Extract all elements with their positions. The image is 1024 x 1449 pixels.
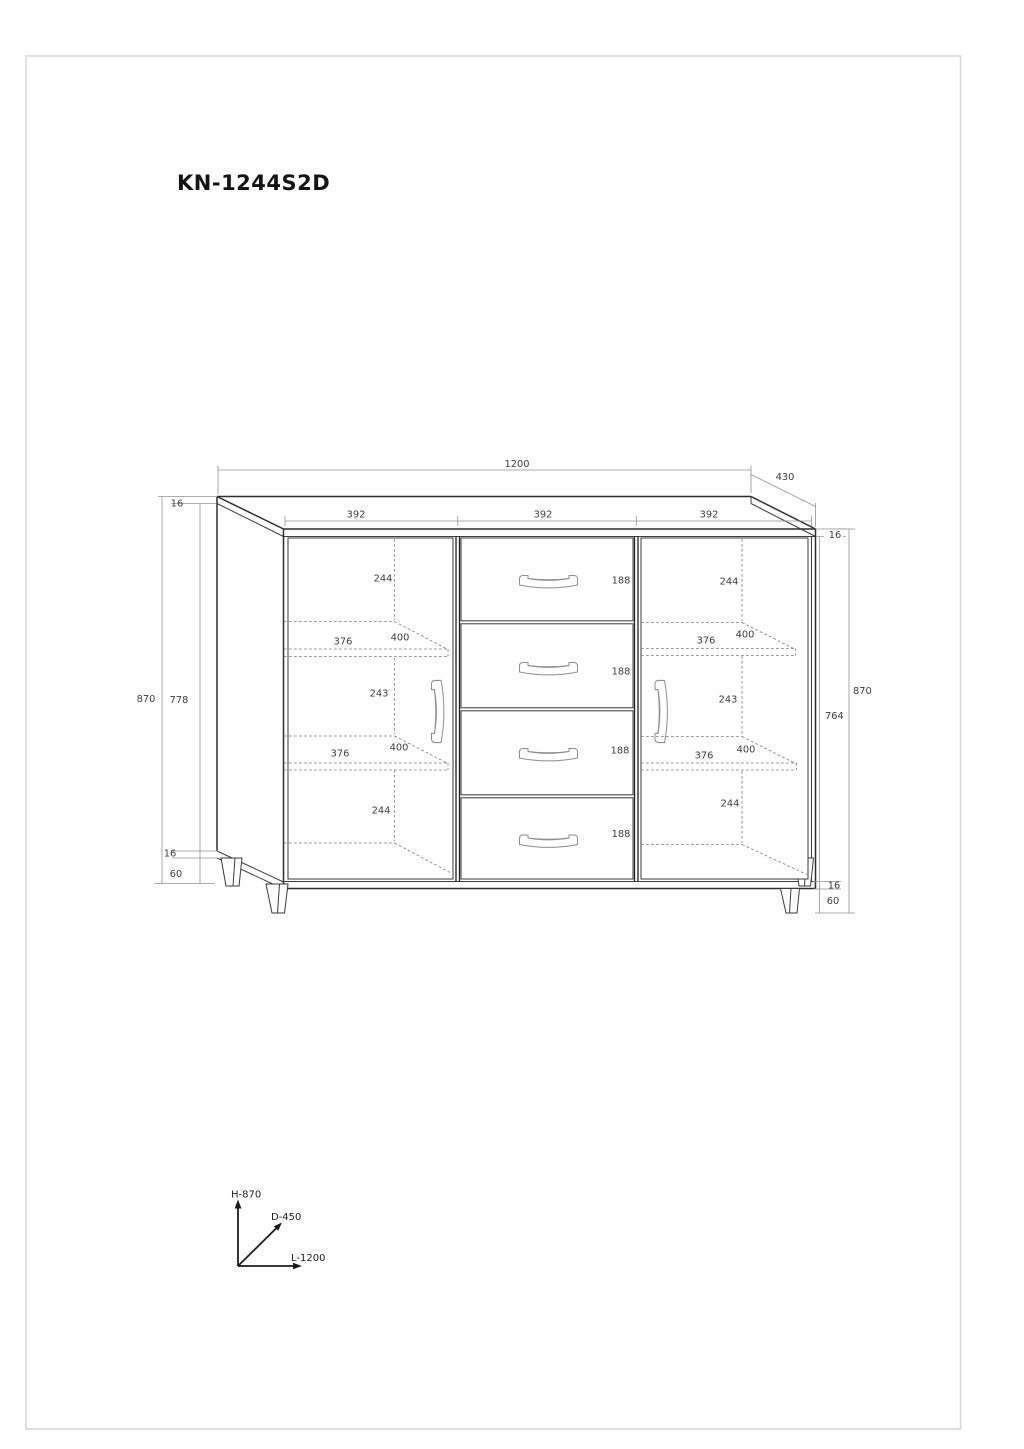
- dim-overall-depth: 430: [776, 472, 795, 483]
- axis-height-label: H-870: [231, 1190, 261, 1201]
- dim-drawer-4-188: 188: [612, 829, 631, 840]
- dim-left-interior-778: 778: [170, 695, 189, 706]
- dim-left-panel-16: 16: [171, 499, 183, 510]
- dim-top-panel-16: 16: [829, 530, 841, 541]
- dim-right-shelf2-376: 376: [695, 751, 714, 762]
- drawing-page: KN-1244S2D: [0, 0, 1024, 1449]
- drawer-front-2: [461, 624, 633, 708]
- dim-left-shelf1-400: 400: [391, 633, 410, 644]
- dim-left-shelf2-376: 376: [331, 749, 350, 760]
- dim-overall-width: 1200: [505, 459, 530, 470]
- dim-left-space-bot-244: 244: [372, 806, 391, 817]
- dim-drawer-2-188: 188: [612, 667, 631, 678]
- axis-depth-label: D-450: [271, 1212, 301, 1223]
- dim-left-bottom-16: 16: [164, 849, 176, 860]
- divider-left: [456, 537, 460, 882]
- drawer-front-4: [461, 798, 633, 879]
- axis-triad: H-870 D-450 L-1200: [231, 1190, 325, 1270]
- dim-right-leg-60: 60: [827, 896, 839, 907]
- dim-right-shelf2-400: 400: [737, 745, 756, 756]
- dim-right-front-764: 764: [825, 711, 844, 722]
- dim-right-space-bot-244: 244: [721, 799, 740, 810]
- dim-right-space-top-244: 244: [720, 577, 739, 588]
- page-title: KN-1244S2D: [177, 171, 330, 195]
- dim-section-1: 392: [347, 510, 366, 521]
- technical-drawing: KN-1244S2D: [0, 0, 1024, 1449]
- dim-right-bottom-16: 16: [828, 881, 840, 892]
- dim-right-shelf1-376: 376: [697, 636, 716, 647]
- dim-right-height-870: 870: [853, 686, 872, 697]
- dim-section-3: 392: [700, 510, 719, 521]
- divider-right: [635, 537, 639, 882]
- dim-drawer-1-188: 188: [612, 576, 631, 587]
- left-door: [288, 538, 453, 879]
- dim-left-shelf1-376: 376: [334, 637, 353, 648]
- dim-left-space-mid-243: 243: [370, 689, 389, 700]
- dim-right-space-mid-243: 243: [719, 695, 738, 706]
- dim-left-shelf2-400: 400: [390, 743, 409, 754]
- dim-left-height-870: 870: [137, 694, 156, 705]
- dim-left-leg-60: 60: [170, 869, 182, 880]
- height-arrow-icon: [235, 1200, 242, 1209]
- dim-left-space-top-244: 244: [374, 574, 393, 585]
- axis-length-label: L-1200: [291, 1253, 325, 1264]
- dim-drawer-3-188: 188: [611, 746, 630, 757]
- dim-section-2: 392: [534, 510, 553, 521]
- dim-right-shelf1-400: 400: [736, 630, 755, 641]
